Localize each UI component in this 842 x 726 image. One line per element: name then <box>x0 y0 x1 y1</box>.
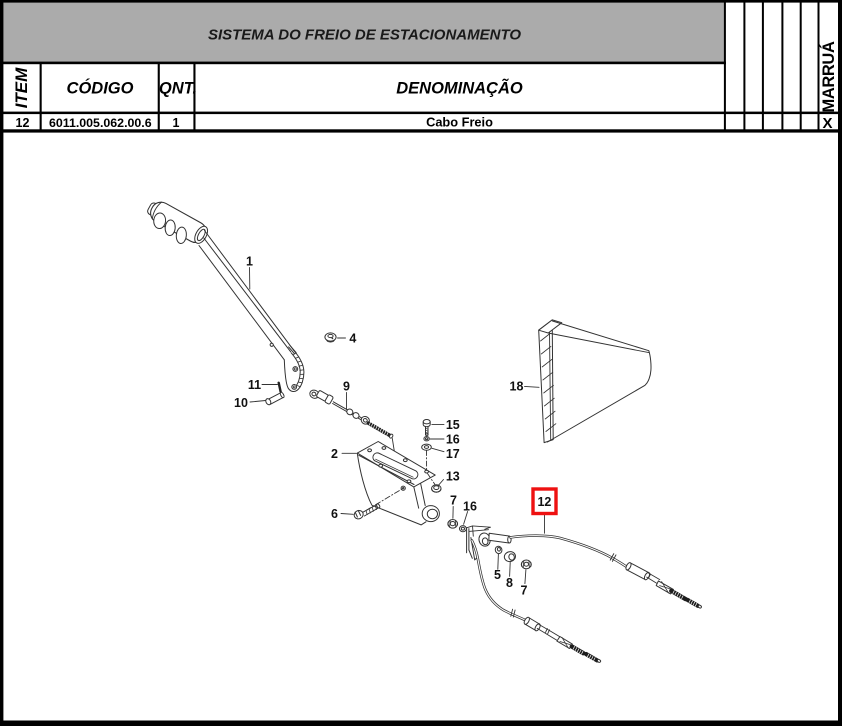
svg-text:MARRUÁ: MARRUÁ <box>819 41 838 112</box>
svg-text:1: 1 <box>173 116 180 130</box>
svg-text:16: 16 <box>446 433 460 447</box>
svg-text:ITEM: ITEM <box>12 67 31 108</box>
svg-text:1: 1 <box>246 255 253 269</box>
svg-text:7: 7 <box>450 494 457 508</box>
svg-text:SISTEMA DO FREIO DE ESTACIONAM: SISTEMA DO FREIO DE ESTACIONAMENTO <box>208 27 521 44</box>
svg-text:DENOMINAÇÃO: DENOMINAÇÃO <box>396 78 523 98</box>
svg-text:12: 12 <box>16 116 30 130</box>
svg-text:6: 6 <box>331 507 338 521</box>
svg-text:17: 17 <box>446 447 460 461</box>
svg-text:X: X <box>822 115 832 132</box>
svg-text:6011.005.062.00.6: 6011.005.062.00.6 <box>49 116 152 130</box>
svg-text:QNT.: QNT. <box>159 80 197 98</box>
svg-text:8: 8 <box>506 576 513 590</box>
svg-text:7: 7 <box>521 584 528 598</box>
svg-text:11: 11 <box>248 378 261 392</box>
svg-text:Cabo Freio: Cabo Freio <box>426 114 493 129</box>
svg-text:13: 13 <box>446 470 460 484</box>
svg-text:CÓDIGO: CÓDIGO <box>67 79 134 98</box>
svg-text:5: 5 <box>494 568 501 582</box>
svg-text:10: 10 <box>234 396 248 410</box>
svg-text:16: 16 <box>463 500 477 514</box>
svg-text:9: 9 <box>343 380 350 394</box>
svg-text:15: 15 <box>446 418 460 432</box>
svg-text:12: 12 <box>537 495 551 509</box>
svg-text:18: 18 <box>510 380 524 394</box>
svg-text:2: 2 <box>331 447 338 461</box>
svg-text:4: 4 <box>349 332 356 346</box>
